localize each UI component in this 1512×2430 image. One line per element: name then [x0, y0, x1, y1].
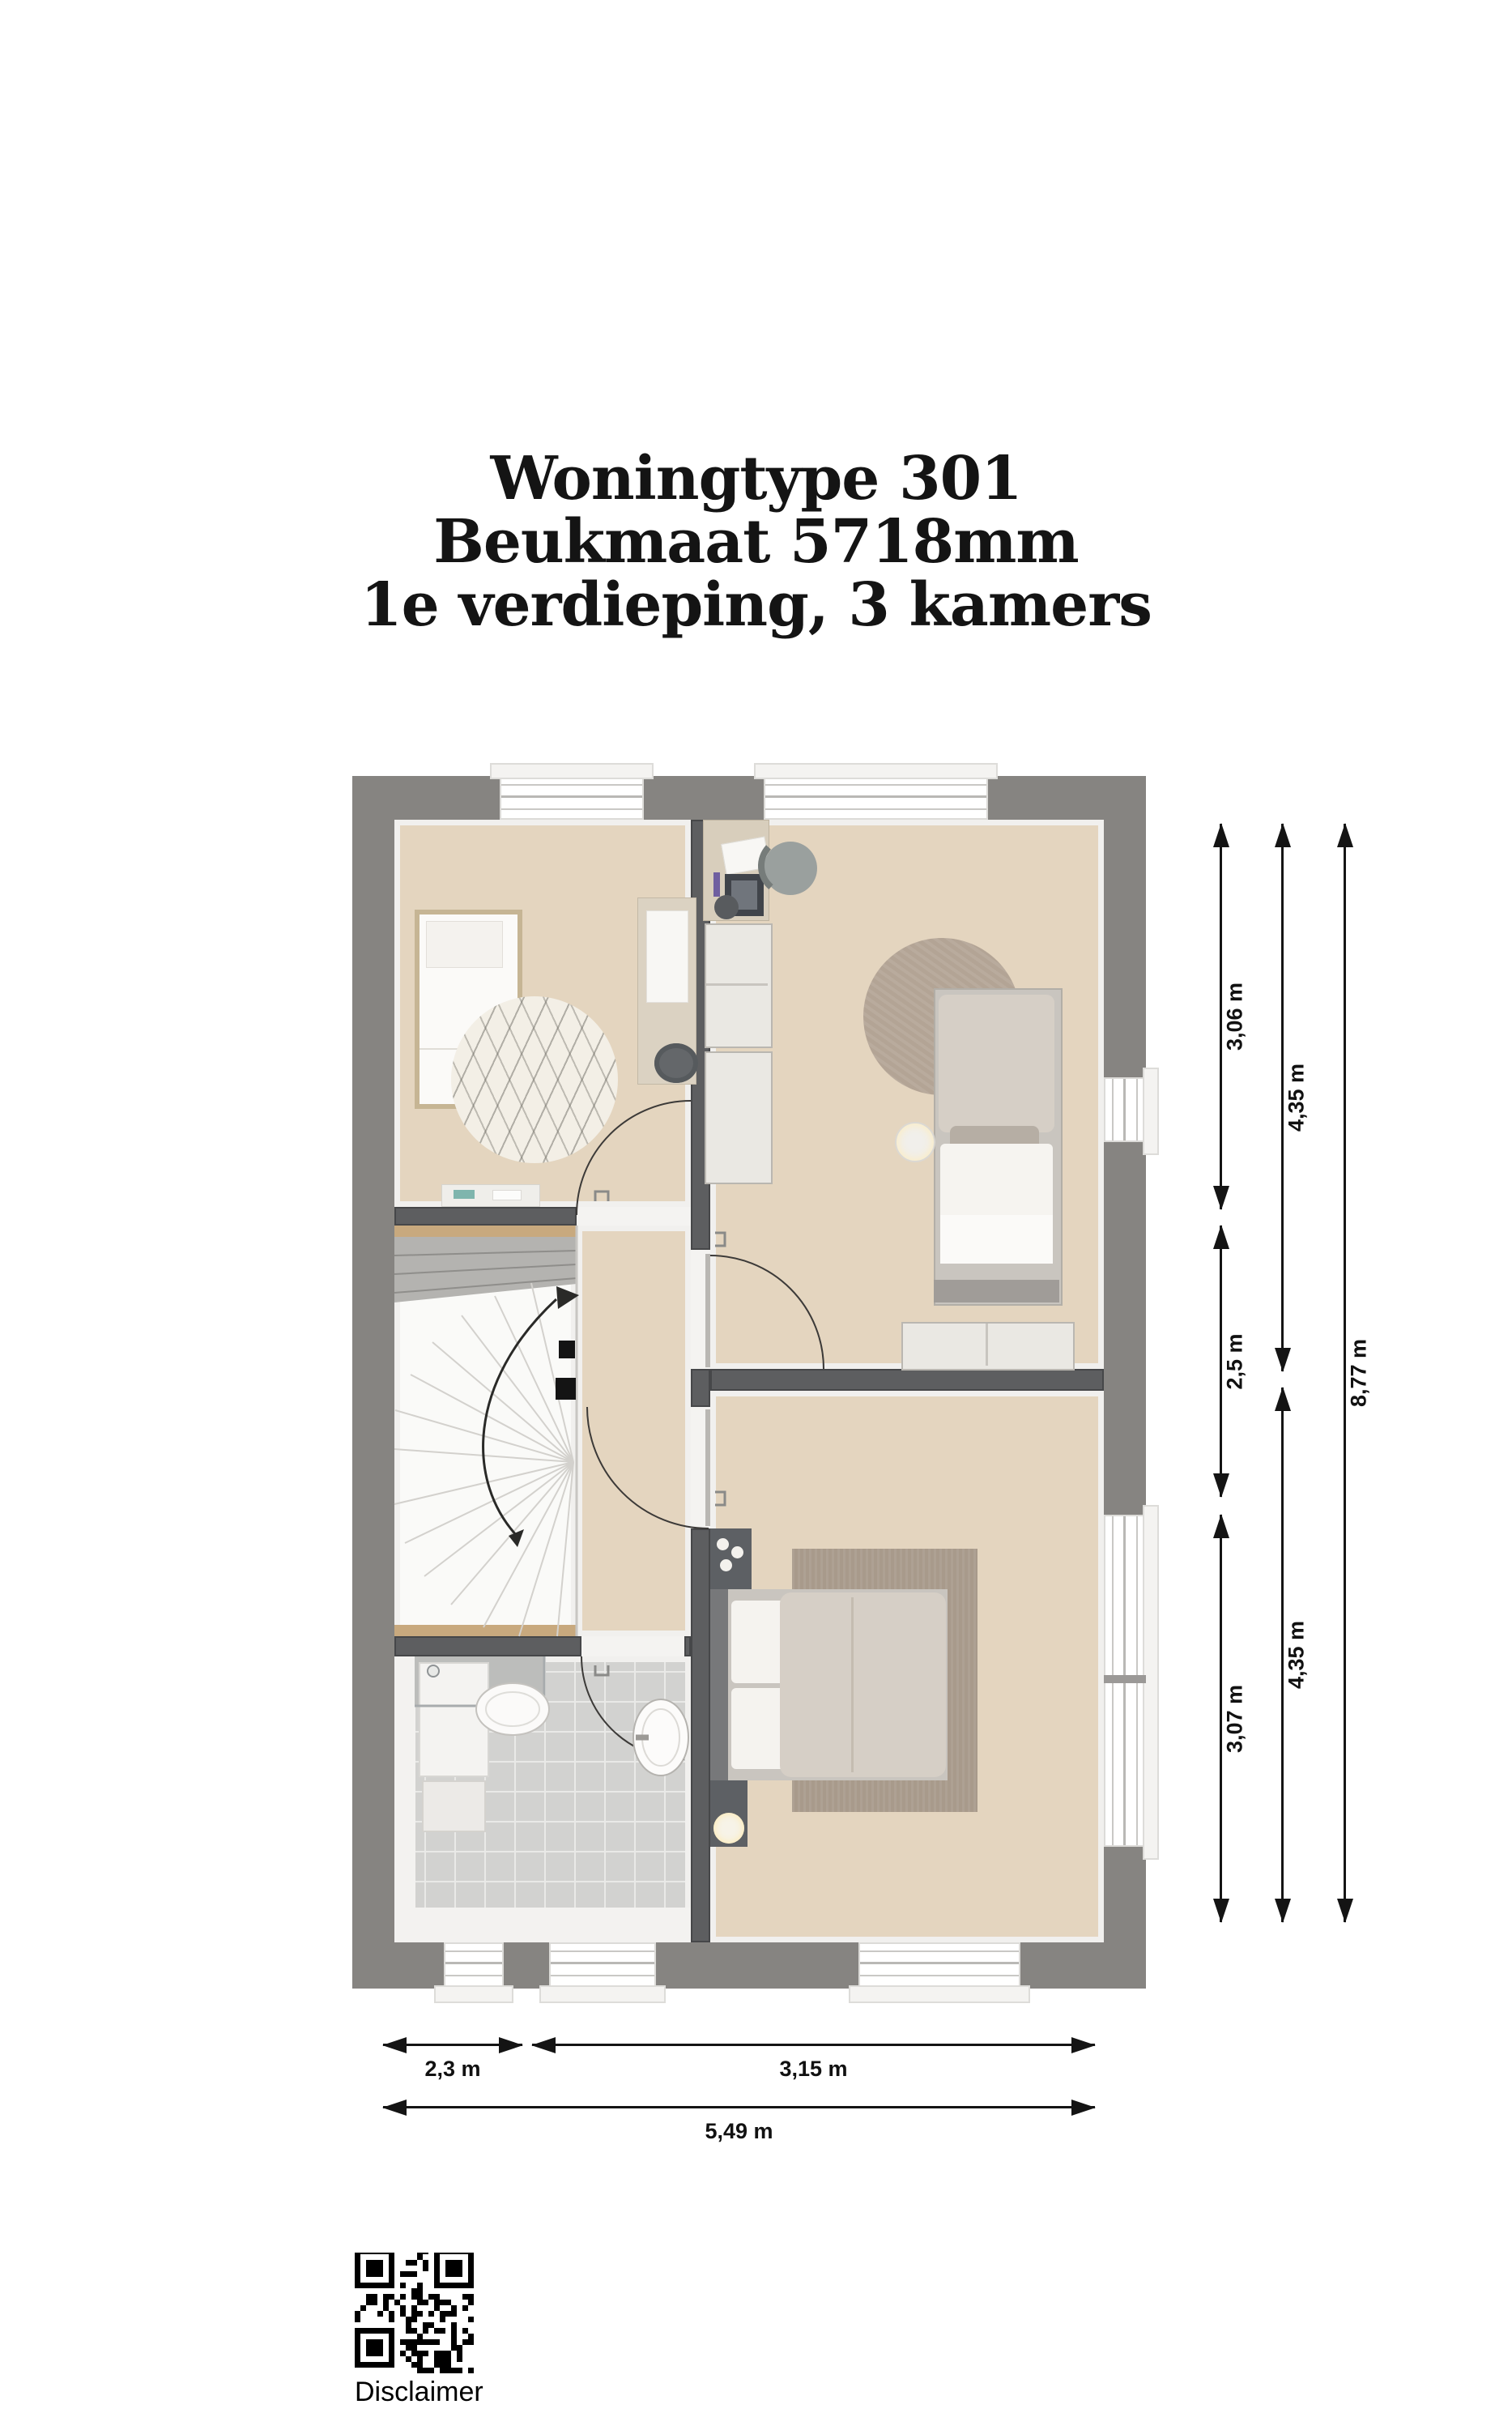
dim-label: 8,77 m: [1346, 1339, 1371, 1407]
dimension-horizontal: 2,3 m: [383, 2044, 522, 2046]
stair-newel-post: [559, 1341, 575, 1358]
dimension-vertical: 3,07 m: [1220, 1515, 1222, 1922]
title-line-verdieping: 1e verdieping, 3 kamers: [0, 573, 1512, 637]
dim-label: 2,5 m: [1222, 1333, 1247, 1389]
arrowhead-left: [531, 2037, 556, 2053]
arrowhead-up: [1213, 823, 1229, 847]
arrowhead-up: [1213, 1514, 1229, 1538]
chair-seat: [764, 842, 817, 895]
dim-label: 5,49 m: [705, 2119, 773, 2144]
dim-label: 2,3 m: [424, 2057, 480, 2082]
toilet: [476, 1683, 549, 1735]
page-title: Woningtype 301 Beukmaat 5718mm 1e verdie…: [0, 447, 1512, 637]
dimension-vertical: 2,5 m: [1220, 1226, 1222, 1497]
dimension-vertical: 3,06 m: [1220, 824, 1222, 1209]
toilet-bowl: [476, 1683, 549, 1735]
disclaimer-label: Disclaimer: [355, 2377, 483, 2408]
dimension-vertical: 8,77 m: [1344, 824, 1346, 1922]
stair-newel-post: [556, 1378, 576, 1400]
shower-head-icon: [428, 1665, 439, 1677]
dim-label: 3,06 m: [1222, 983, 1247, 1051]
dim-label: 4,35 m: [1284, 1621, 1309, 1689]
arrowhead-down: [1213, 1186, 1229, 1210]
floorplan: [352, 776, 1146, 1989]
door-arc-bedroom2: [577, 1101, 691, 1215]
title-line-beukmaat: Beukmaat 5718mm: [0, 510, 1512, 573]
stair-direction-arrow: [483, 1299, 556, 1537]
plan-linework: [352, 776, 1146, 1989]
arrowhead-left: [382, 2037, 407, 2053]
arrowhead-left: [382, 2100, 407, 2116]
dim-label: 3,07 m: [1222, 1684, 1247, 1752]
arrowhead-up: [1337, 823, 1353, 847]
floorplan-page: Woningtype 301 Beukmaat 5718mm 1e verdie…: [0, 0, 1512, 2430]
arrowhead-up: [1275, 1387, 1291, 1411]
title-line-woningtype: Woningtype 301: [0, 447, 1512, 510]
dimension-horizontal: 5,49 m: [383, 2106, 1095, 2108]
door-arcs: [577, 1101, 824, 1759]
stair-wood-edge-top: [394, 1226, 577, 1237]
arrowhead-right: [1071, 2037, 1096, 2053]
arrowhead-down: [1337, 1899, 1353, 1923]
arrowhead-right: [1071, 2100, 1096, 2116]
dim-label: 4,35 m: [1284, 1064, 1309, 1132]
arrowhead-up: [1275, 823, 1291, 847]
dimension-horizontal: 3,15 m: [532, 2044, 1095, 2046]
arrowhead-right: [499, 2037, 523, 2053]
arrowhead-up: [1213, 1225, 1229, 1249]
arrowhead-down: [1275, 1899, 1291, 1923]
arrowhead-down: [1213, 1473, 1229, 1498]
staircase: [394, 1226, 579, 1636]
dim-label: 3,15 m: [779, 2057, 847, 2082]
washbasin: [633, 1699, 688, 1776]
dimension-vertical: 4,35 m: [1281, 824, 1284, 1371]
desk-chair-bedroom3: [761, 842, 817, 895]
stair-arrow-tail: [509, 1529, 524, 1547]
arrowhead-down: [1275, 1348, 1291, 1372]
dimension-vertical: 4,35 m: [1281, 1388, 1284, 1922]
door-arc-master: [587, 1407, 709, 1528]
qr-code: [355, 2253, 476, 2379]
door-arc-bedroom3: [710, 1255, 824, 1369]
arrowhead-down: [1213, 1899, 1229, 1923]
stair-wood-edge-bottom: [394, 1625, 577, 1636]
